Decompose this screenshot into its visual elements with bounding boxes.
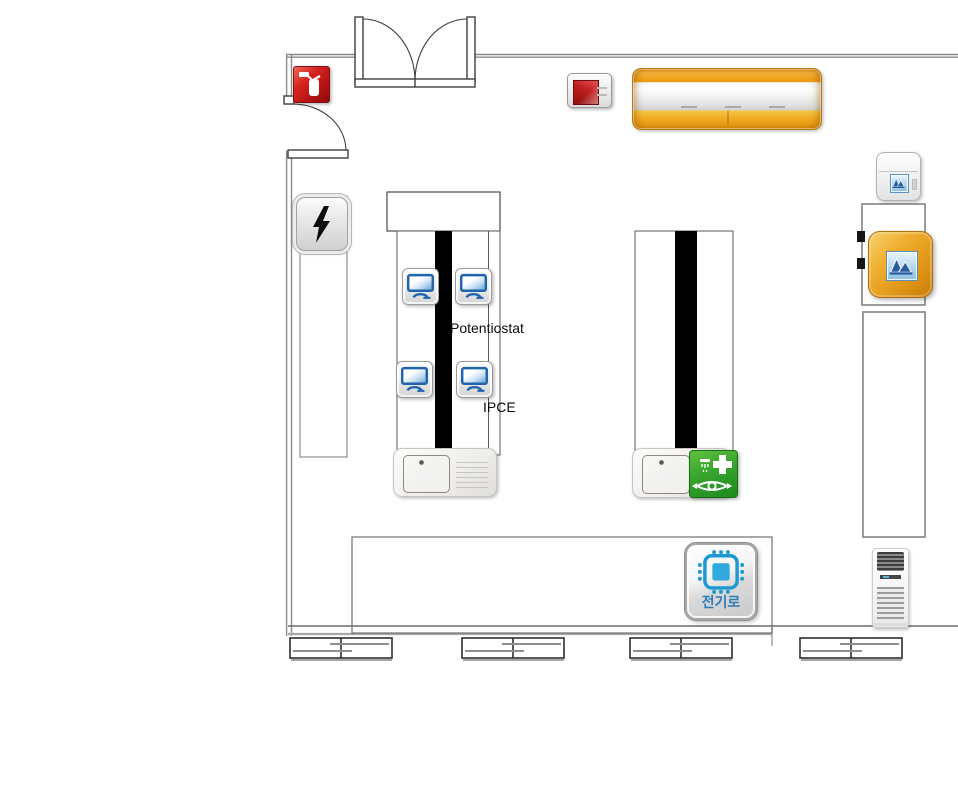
door-opening-left — [283, 102, 294, 151]
window-unit — [290, 638, 392, 660]
eyewash-station-icon[interactable] — [689, 450, 738, 498]
monitor-glyph — [397, 362, 432, 397]
monitor-icon[interactable] — [396, 361, 433, 398]
monitor-icon[interactable] — [456, 361, 493, 398]
side-table-lower — [863, 312, 925, 537]
monitor-glyph — [403, 269, 438, 304]
monitor-glyph — [456, 269, 491, 304]
window-unit — [630, 638, 732, 660]
safety-cabinet[interactable] — [632, 68, 822, 130]
sink-unit[interactable] — [393, 448, 497, 497]
cabinet-dash — [681, 106, 697, 108]
room-walls — [286, 54, 958, 646]
ac-top-grille — [877, 552, 904, 571]
analyzer-latch — [912, 179, 917, 190]
first-aid-cross — [713, 455, 732, 474]
floorplan-stage: Potentiostat IPCE — [0, 0, 958, 800]
eyewash-glyph — [690, 451, 737, 497]
analyzer-icon-orange[interactable] — [868, 231, 933, 298]
lightning-icon — [297, 198, 347, 250]
sink-basin — [403, 455, 450, 493]
bench-stripe — [435, 231, 452, 455]
furnace-button[interactable]: 전기로 — [685, 543, 757, 620]
faucet-dot — [419, 460, 424, 465]
spectrum-peaks-icon — [890, 174, 909, 193]
drainboard-lines — [456, 462, 488, 488]
cabinet-dash — [769, 106, 785, 108]
analyzer-lid-line — [879, 171, 918, 172]
vent-line — [597, 87, 607, 89]
furnace-label: 전기로 — [687, 592, 755, 612]
monitor-icon[interactable] — [402, 268, 439, 305]
analyzer-icon[interactable] — [876, 152, 921, 201]
ac-display — [880, 575, 901, 579]
monitor-glyph — [457, 362, 492, 397]
sink-basin — [642, 455, 690, 494]
windows — [290, 638, 902, 660]
potentiostat-label: Potentiostat — [450, 320, 524, 336]
air-conditioner-unit[interactable] — [872, 548, 909, 628]
ipce-label: IPCE — [483, 399, 516, 415]
cabinet-dash — [725, 106, 741, 108]
cabinet-door-split — [727, 111, 729, 126]
monitor-icon[interactable] — [455, 268, 492, 305]
window-unit — [800, 638, 902, 660]
faucet-dot — [659, 460, 664, 465]
chip-icon — [687, 550, 755, 596]
lab-bench-right — [635, 231, 733, 455]
electrical-panel-icon[interactable] — [296, 197, 348, 251]
door-opening-top — [355, 48, 475, 59]
emergency-stop-screen — [573, 80, 599, 105]
spectrum-peaks-icon — [886, 251, 918, 281]
ac-louvers — [877, 587, 904, 621]
ac-base — [874, 623, 907, 626]
window-unit — [462, 638, 564, 660]
emergency-stop-icon[interactable] — [567, 73, 612, 108]
vent-line — [597, 94, 607, 96]
fire-extinguisher-icon[interactable] — [293, 66, 330, 103]
bench-stripe — [675, 231, 697, 455]
fire-extinguisher-glyph — [294, 67, 331, 104]
